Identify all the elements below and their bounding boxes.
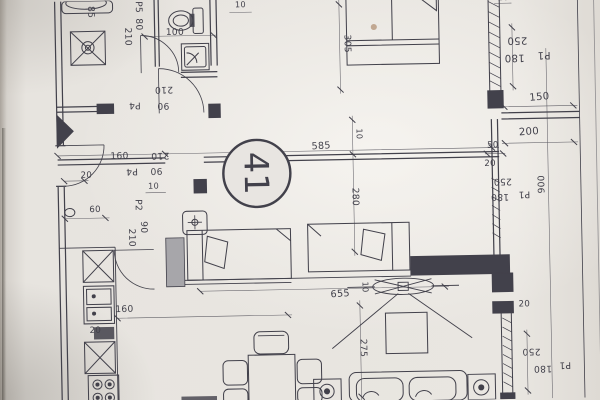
kitchen-cabinet-1 — [83, 250, 114, 282]
thick-wall-horizontal — [411, 255, 510, 275]
kitchen-sink — [83, 286, 114, 324]
dim-label-90: 90 — [157, 100, 169, 110]
nightstand — [182, 211, 207, 235]
pillow — [360, 229, 385, 261]
dim-label-210: 210 — [151, 150, 170, 160]
chair — [254, 331, 289, 354]
dim-label-P5: P5 — [133, 1, 143, 13]
wall-cap — [97, 104, 113, 113]
outer-edge-line — [593, 0, 600, 397]
pillow — [418, 0, 437, 11]
dim-label-100: 100 — [166, 28, 185, 38]
dim-label-50: 50 — [487, 140, 499, 150]
floor-plan-photo: 41 85P5802101010030520250180P11502005020… — [0, 0, 600, 400]
dim-label-210: 210 — [126, 228, 136, 247]
dim-label-10: 10 — [235, 0, 246, 9]
dim-label-180: 180 — [504, 52, 524, 63]
coffee-table — [385, 312, 427, 353]
dim-label-585: 585 — [311, 140, 331, 152]
dining-set — [181, 331, 322, 400]
dim-label-250: 250 — [522, 346, 541, 356]
double-bed — [346, 0, 440, 65]
paper-stain — [371, 24, 377, 30]
wall-cap — [209, 104, 220, 117]
wc-bottom-wall — [181, 72, 218, 78]
pillow — [204, 236, 228, 269]
dim-label-180: 180 — [491, 191, 510, 201]
floor-plan-drawing: 41 85P5802101010030520250180P11502005020… — [0, 0, 600, 400]
dim-label-20: 20 — [90, 326, 102, 336]
chair — [297, 359, 322, 384]
dining-table — [248, 354, 296, 400]
kitchen-row — [65, 208, 120, 400]
dim-label-20: 20 — [518, 299, 530, 309]
window-bottom-right — [499, 313, 515, 400]
door-jamb-stub — [194, 179, 206, 192]
bathroom-divider-wall — [154, 0, 159, 67]
thick-wall-vertical-lower — [493, 301, 514, 313]
dim-label-10: 10 — [148, 180, 159, 190]
dim-label-200: 200 — [519, 126, 540, 138]
dim-label-10: 10 — [360, 281, 370, 292]
dim-label-P1: P1 — [559, 359, 571, 369]
wardrobe — [166, 238, 185, 287]
dim-label-210: 210 — [122, 28, 132, 47]
chair — [298, 387, 323, 400]
dim-label-P4: P4 — [129, 100, 141, 110]
dim-label-210: 210 — [155, 84, 174, 94]
chair — [223, 360, 248, 385]
dim-label-305: 305 — [342, 35, 352, 54]
dim-label-275: 275 — [358, 339, 368, 358]
sideboard-block — [182, 397, 217, 400]
unit-badge: 41 — [223, 139, 291, 207]
dim-label-160: 160 — [110, 152, 129, 162]
dim-label-80: 80 — [133, 18, 143, 30]
dim-label-P1: P1 — [537, 49, 550, 60]
stove — [88, 375, 119, 400]
hood-symbol — [65, 208, 75, 216]
dim-label-P2: P2 — [133, 199, 143, 211]
dim-label-90: 90 — [150, 165, 162, 175]
dim-label-655: 655 — [330, 288, 350, 300]
left-exterior-wall — [53, 2, 71, 400]
thick-wall-vertical-upper — [492, 273, 513, 292]
shower — [181, 43, 209, 70]
side-table-right — [468, 374, 496, 400]
unit-number: 41 — [236, 151, 276, 195]
dim-label-180: 180 — [534, 363, 553, 373]
chair — [223, 389, 248, 400]
kitchen-cabinet-2 — [84, 342, 115, 374]
dim-label-85: 85 — [85, 6, 95, 18]
dim-label-P4: P4 — [126, 166, 138, 176]
dim-label-20: 20 — [484, 159, 496, 169]
dim-label-250: 250 — [493, 176, 512, 186]
dim-label-250: 250 — [507, 34, 527, 45]
dim-label-20: 20 — [80, 171, 92, 181]
window-top-right — [486, 0, 503, 108]
dim-label-90: 90 — [138, 221, 148, 233]
dim-label-280: 280 — [350, 188, 360, 207]
right-wing-wall — [501, 111, 579, 119]
entrance-direction-triangle — [57, 115, 74, 148]
dim-label-P1: P1 — [518, 189, 530, 199]
dim-label-10: 10 — [354, 128, 364, 139]
dim-label-150: 150 — [529, 91, 550, 104]
washing-machine — [70, 31, 105, 65]
dim-label-60: 60 — [89, 205, 101, 215]
single-bed-1 — [187, 229, 291, 281]
dim-label-900: 900 — [537, 175, 547, 194]
dim-label-20: 20 — [498, 0, 509, 2]
kitchen-door-swing — [114, 250, 154, 290]
sofa — [349, 370, 467, 400]
dim-label-160: 160 — [115, 305, 134, 315]
balcony-edge-line — [577, 0, 585, 398]
photo-edge-shadow — [2, 128, 6, 400]
side-table-left — [314, 379, 342, 400]
single-bed-2 — [308, 222, 410, 272]
